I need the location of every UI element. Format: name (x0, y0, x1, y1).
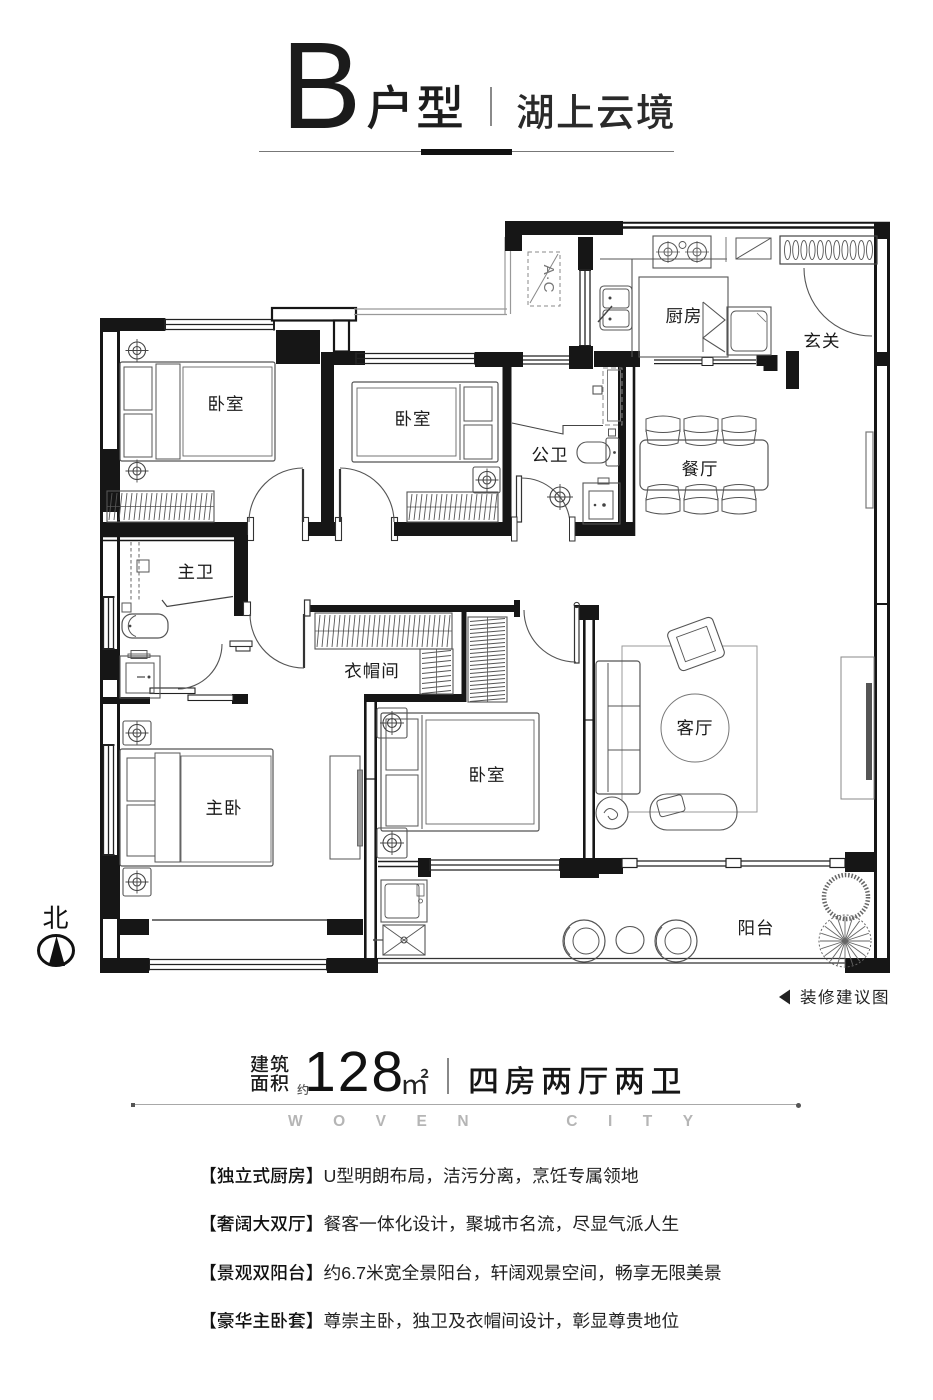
svg-text:卧室: 卧室 (469, 762, 506, 787)
svg-text:装修建议图: 装修建议图 (800, 984, 890, 1008)
svg-text:餐厅: 餐厅 (682, 456, 719, 481)
svg-text:玄关: 玄关 (804, 328, 841, 353)
svg-text:主卫: 主卫 (178, 559, 215, 584)
svg-text:厨房: 厨房 (666, 303, 703, 328)
svg-text:客厅: 客厅 (677, 715, 714, 740)
svg-text:卧室: 卧室 (395, 406, 432, 431)
svg-text:主卧: 主卧 (206, 795, 243, 820)
svg-text:A·C: A·C (540, 265, 557, 294)
svg-text:衣帽间: 衣帽间 (344, 658, 400, 683)
svg-text:公卫: 公卫 (532, 442, 569, 467)
svg-text:阳台: 阳台 (738, 915, 775, 940)
svg-text:卧室: 卧室 (208, 391, 245, 416)
svg-text:北: 北 (42, 898, 68, 935)
